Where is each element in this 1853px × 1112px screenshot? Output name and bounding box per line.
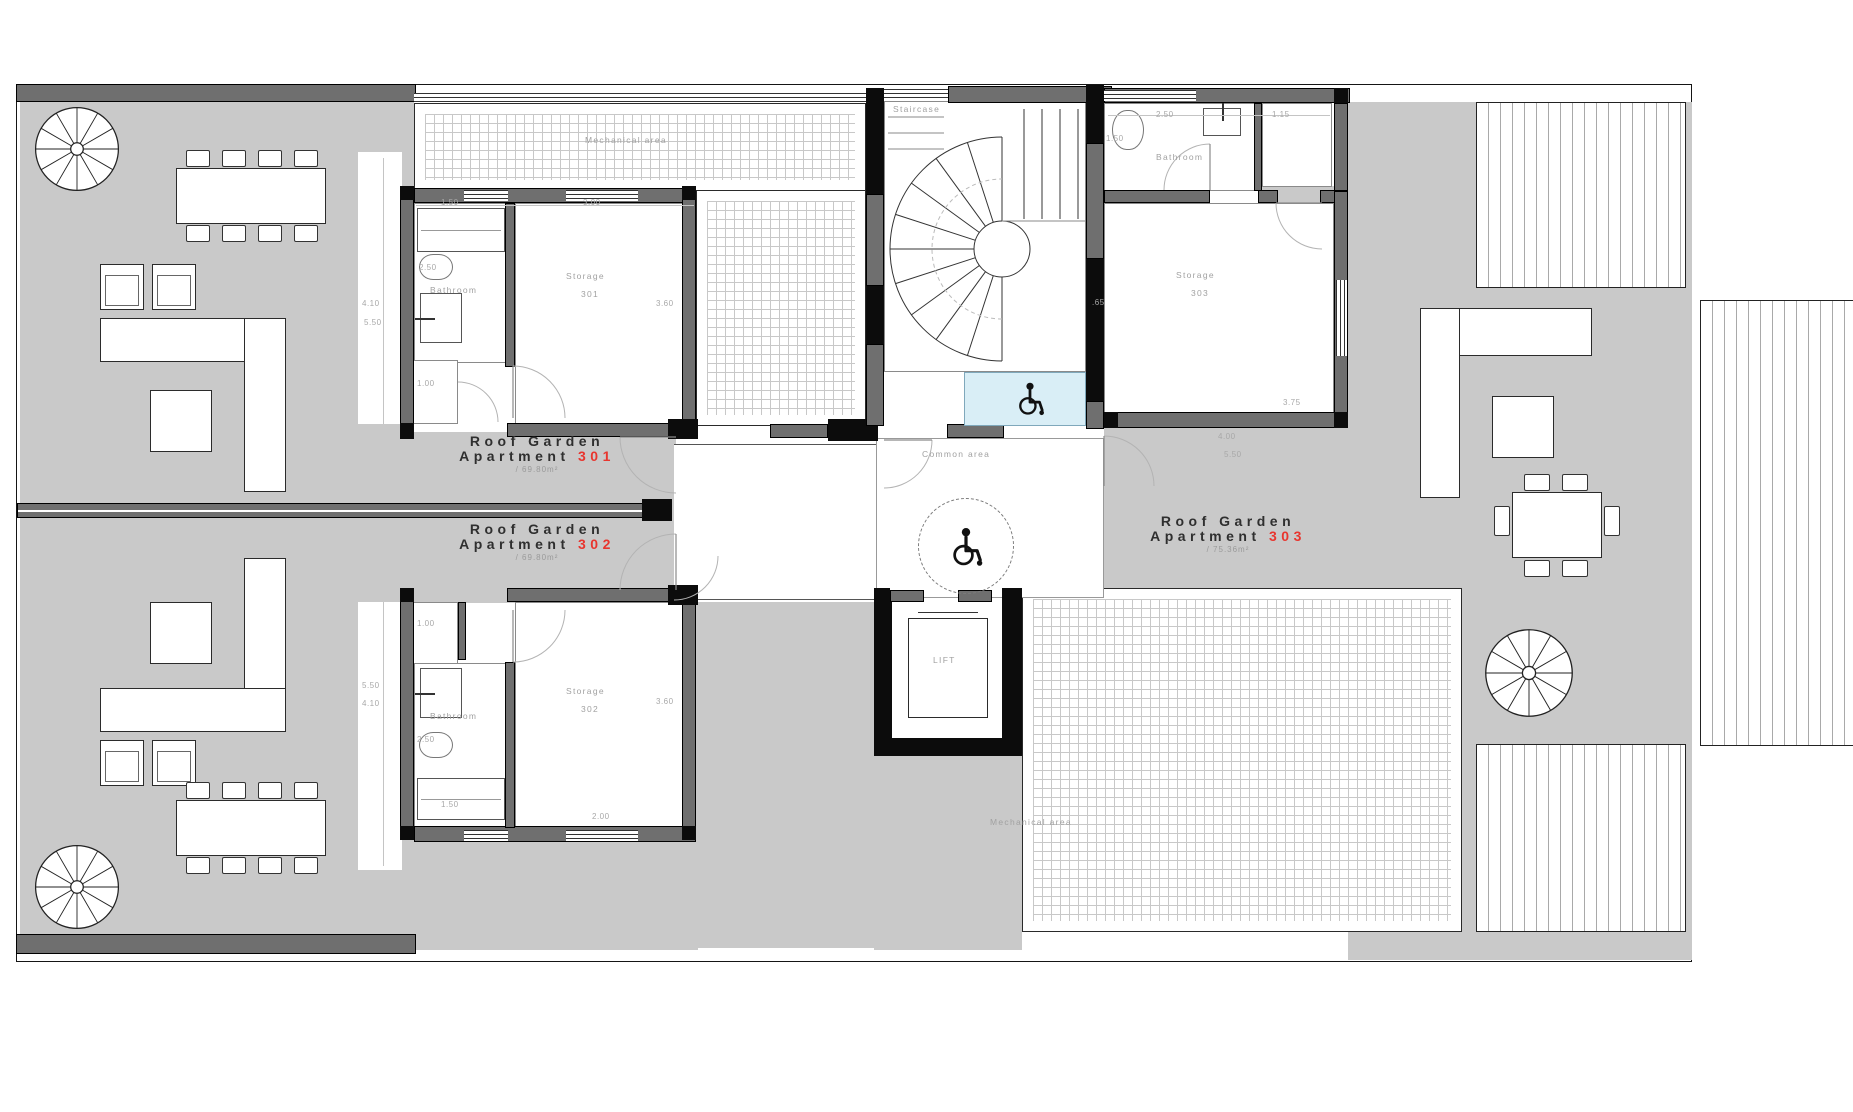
dim-line bbox=[383, 602, 384, 866]
dim-label: 2.50 bbox=[1156, 110, 1174, 119]
dim-label: 1.00 bbox=[417, 379, 435, 388]
apartment-area: / 75.36m² bbox=[1098, 545, 1358, 554]
dim-line bbox=[1108, 115, 1330, 116]
floor-plan: Staircase Mechanical area Mechanical are… bbox=[0, 0, 1853, 1112]
dim-label: 4.10 bbox=[362, 299, 380, 308]
apartment-area: / 69.80m² bbox=[407, 553, 667, 562]
label-mechanical-bottom: Mechanical area bbox=[990, 817, 1072, 827]
dim-label: 4.00 bbox=[1218, 432, 1236, 441]
apartment-301-label: Roof Garden Apartment 301 / 69.80m² bbox=[407, 434, 667, 474]
dim-label: 2.50 bbox=[417, 735, 435, 744]
dim-label: 3.60 bbox=[656, 299, 674, 308]
apartment-303-label: Roof Garden Apartment 303 / 75.36m² bbox=[1098, 514, 1358, 554]
dim-label: 1.50 bbox=[441, 198, 459, 207]
dim-label: 5.50 bbox=[364, 318, 382, 327]
label-bathroom-303: Bathroom bbox=[1156, 152, 1203, 162]
dim-label: 4.10 bbox=[362, 699, 380, 708]
wheelchair-icon-platform bbox=[1013, 381, 1047, 417]
label-storage-301: Storage bbox=[566, 271, 605, 281]
label-lift: LIFT bbox=[933, 655, 956, 665]
apartment-type-number: Apartment 301 bbox=[407, 449, 667, 464]
dim-label: 1.50 bbox=[441, 800, 459, 809]
dim-label: 3.00 bbox=[583, 198, 601, 207]
label-bathroom-301: Bathroom bbox=[430, 285, 477, 295]
apartment-number: 302 bbox=[578, 536, 615, 552]
label-storage-302-num: 302 bbox=[581, 704, 599, 714]
apartment-type-number: Apartment 302 bbox=[407, 537, 667, 552]
label-staircase: Staircase bbox=[893, 104, 940, 114]
dim-label: 1.50 bbox=[1106, 134, 1124, 143]
dim-label: 3.75 bbox=[1283, 398, 1301, 407]
dim-label: 3.60 bbox=[656, 697, 674, 706]
door-arcs bbox=[0, 0, 1853, 1112]
dim-label: 1.00 bbox=[417, 619, 435, 628]
dim-line bbox=[383, 158, 384, 424]
dim-label: .65 bbox=[1092, 298, 1105, 307]
label-storage-301-num: 301 bbox=[581, 289, 599, 299]
apartment-name: Roof Garden bbox=[407, 434, 667, 449]
apartment-302-label: Roof Garden Apartment 302 / 69.80m² bbox=[407, 522, 667, 562]
label-storage-303-num: 303 bbox=[1191, 288, 1209, 298]
apartment-number: 301 bbox=[578, 448, 615, 464]
dim-label: 2.00 bbox=[592, 812, 610, 821]
label-bathroom-302: Bathroom bbox=[430, 711, 477, 721]
wheelchair-icon-common bbox=[946, 526, 986, 568]
dim-label: 5.50 bbox=[362, 681, 380, 690]
apartment-number: 303 bbox=[1269, 528, 1306, 544]
dim-label: 2.50 bbox=[419, 263, 437, 272]
apartment-name: Roof Garden bbox=[407, 522, 667, 537]
label-common-area: Common area bbox=[922, 449, 990, 459]
label-storage-302: Storage bbox=[566, 686, 605, 696]
apartment-type-number: Apartment 303 bbox=[1098, 529, 1358, 544]
dim-label: 1.15 bbox=[1272, 110, 1290, 119]
label-storage-303: Storage bbox=[1176, 270, 1215, 280]
apartment-area: / 69.80m² bbox=[407, 465, 667, 474]
dim-label: 5.50 bbox=[1224, 450, 1242, 459]
apartment-name: Roof Garden bbox=[1098, 514, 1358, 529]
label-mechanical-top: Mechanical area bbox=[585, 135, 667, 145]
